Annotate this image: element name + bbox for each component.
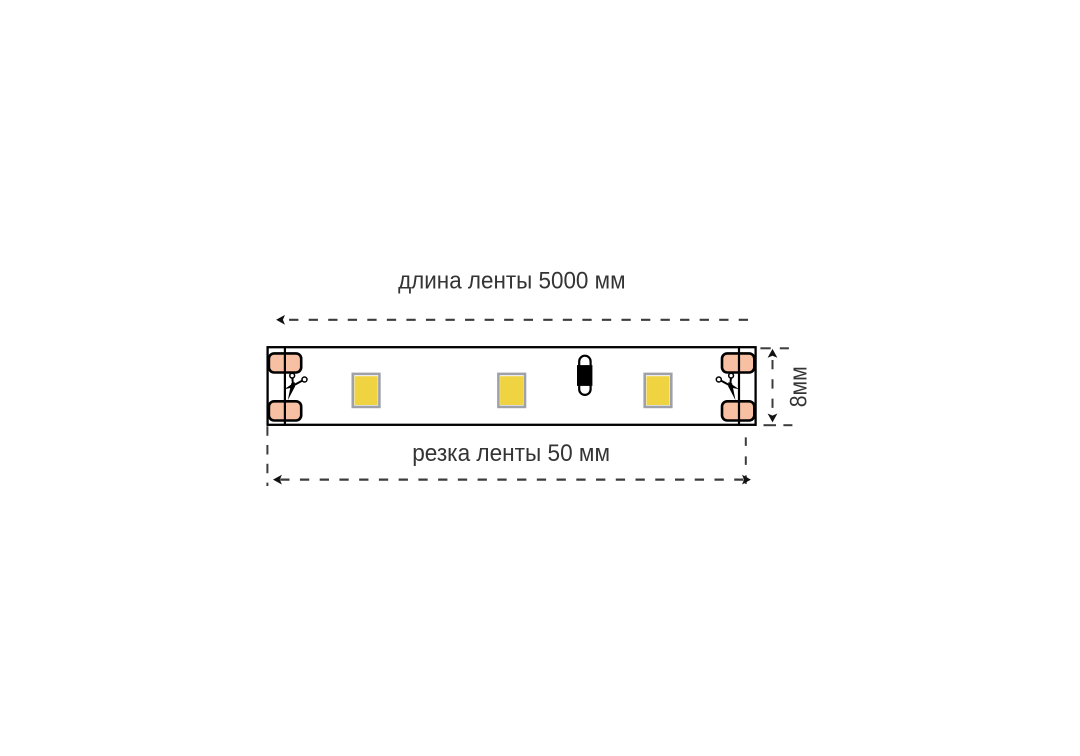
svg-text:резка ленты 50 мм: резка ленты 50 мм — [412, 440, 610, 467]
svg-text:8мм: 8мм — [786, 366, 813, 407]
svg-text:длина ленты 5000 мм: длина ленты 5000 мм — [398, 267, 625, 294]
